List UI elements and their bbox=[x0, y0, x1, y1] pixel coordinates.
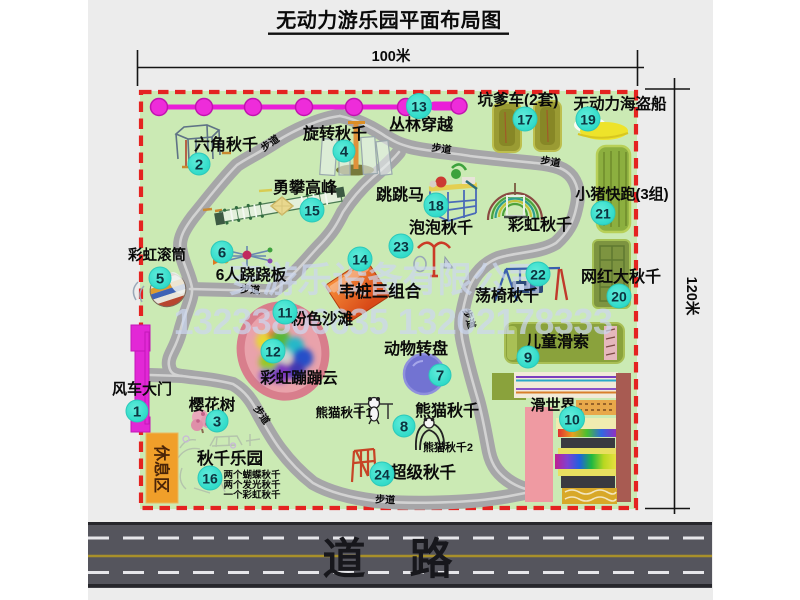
svg-text:12: 12 bbox=[265, 344, 281, 360]
svg-text:19: 19 bbox=[580, 112, 596, 128]
svg-text:17: 17 bbox=[517, 112, 533, 128]
svg-text:彩虹秋千: 彩虹秋千 bbox=[507, 215, 572, 234]
svg-text:动物转盘: 动物转盘 bbox=[384, 339, 448, 358]
svg-text:120米: 120米 bbox=[683, 277, 701, 316]
svg-text:休息区: 休息区 bbox=[152, 444, 171, 493]
svg-text:路: 路 bbox=[410, 536, 454, 584]
svg-text:荡椅秋千: 荡椅秋千 bbox=[475, 286, 539, 305]
svg-text:6人跷跷板: 6人跷跷板 bbox=[216, 265, 287, 284]
svg-text:9: 9 bbox=[524, 350, 532, 367]
svg-text:8: 8 bbox=[400, 419, 408, 436]
svg-text:2: 2 bbox=[195, 157, 203, 174]
svg-text:一个彩虹秋千: 一个彩虹秋千 bbox=[223, 489, 281, 501]
svg-text:24: 24 bbox=[374, 467, 390, 483]
svg-text:14: 14 bbox=[352, 252, 368, 268]
svg-text:18: 18 bbox=[428, 198, 444, 214]
svg-text:秋千乐园: 秋千乐园 bbox=[197, 448, 263, 468]
svg-text:熊猫秋千2: 熊猫秋千2 bbox=[423, 440, 473, 454]
svg-text:韦桩三组合: 韦桩三组合 bbox=[339, 281, 422, 301]
svg-text:1: 1 bbox=[133, 404, 141, 421]
svg-text:5: 5 bbox=[156, 271, 164, 288]
svg-text:网红大秋千: 网红大秋千 bbox=[581, 267, 661, 286]
svg-text:风车大门: 风车大门 bbox=[112, 380, 172, 398]
svg-text:15: 15 bbox=[304, 203, 320, 219]
svg-text:无动力游乐园平面布局图: 无动力游乐园平面布局图 bbox=[276, 8, 502, 32]
svg-text:泡泡秋千: 泡泡秋千 bbox=[409, 218, 473, 237]
svg-text:坑爹车(2套): 坑爹车(2套) bbox=[478, 90, 559, 109]
svg-text:100米: 100米 bbox=[372, 47, 411, 65]
svg-text:小猪快跑(3组): 小猪快跑(3组) bbox=[575, 185, 668, 203]
svg-text:10: 10 bbox=[564, 412, 580, 428]
svg-text:22: 22 bbox=[530, 267, 546, 283]
svg-text:3: 3 bbox=[213, 414, 221, 431]
svg-text:4: 4 bbox=[340, 144, 349, 161]
svg-text:粉色沙滩: 粉色沙滩 bbox=[291, 309, 354, 328]
svg-text:勇攀高峰: 勇攀高峰 bbox=[273, 178, 338, 197]
svg-text:彩虹蹦蹦云: 彩虹蹦蹦云 bbox=[259, 368, 338, 387]
svg-text:13: 13 bbox=[411, 99, 427, 115]
svg-text:熊猫秋千1: 熊猫秋千1 bbox=[316, 405, 373, 420]
svg-text:步道: 步道 bbox=[375, 492, 396, 506]
svg-text:旋转秋千: 旋转秋千 bbox=[302, 124, 367, 143]
svg-text:21: 21 bbox=[595, 206, 611, 222]
svg-text:跳跳马: 跳跳马 bbox=[376, 185, 424, 204]
svg-text:20: 20 bbox=[611, 289, 627, 305]
svg-text:彩虹滚筒: 彩虹滚筒 bbox=[127, 246, 186, 264]
svg-text:6: 6 bbox=[218, 245, 226, 262]
svg-text:16: 16 bbox=[202, 471, 218, 487]
svg-text:熊猫秋千: 熊猫秋千 bbox=[415, 401, 479, 420]
svg-text:道: 道 bbox=[323, 536, 366, 584]
svg-text:11: 11 bbox=[278, 305, 293, 321]
svg-text:六角秋千: 六角秋千 bbox=[194, 135, 258, 154]
svg-text:超级秋千: 超级秋千 bbox=[390, 462, 456, 482]
svg-text:23: 23 bbox=[393, 239, 409, 255]
svg-text:7: 7 bbox=[436, 368, 444, 385]
